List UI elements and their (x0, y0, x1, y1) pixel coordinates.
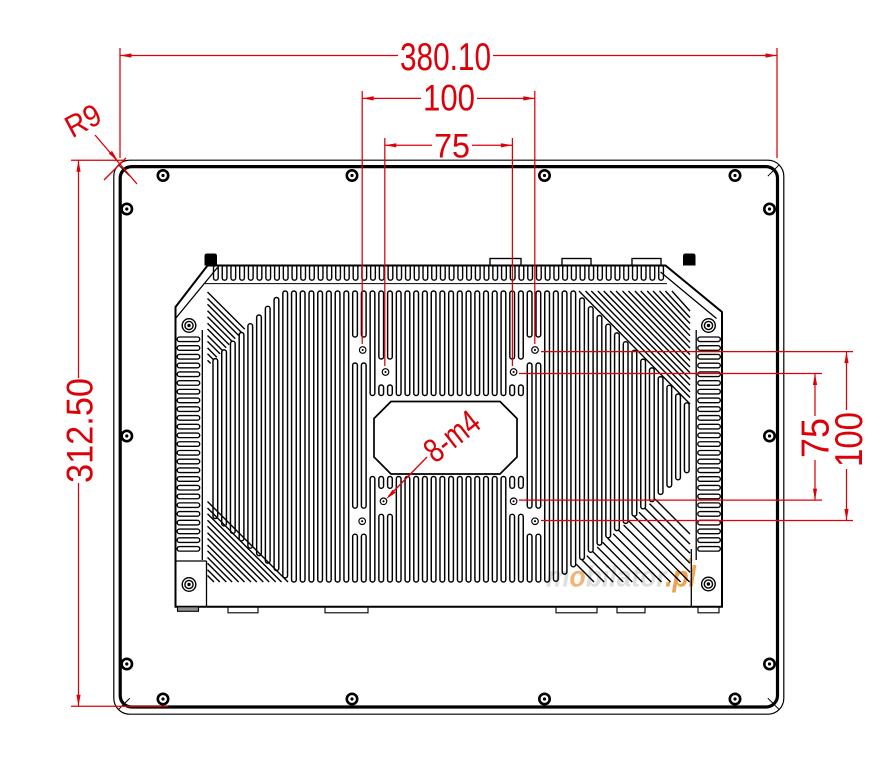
svg-text:75: 75 (434, 127, 470, 165)
svg-text:100: 100 (423, 78, 475, 119)
svg-text:312.50: 312.50 (60, 378, 101, 483)
svg-text:100: 100 (828, 412, 871, 467)
svg-text:380.10: 380.10 (400, 36, 491, 79)
